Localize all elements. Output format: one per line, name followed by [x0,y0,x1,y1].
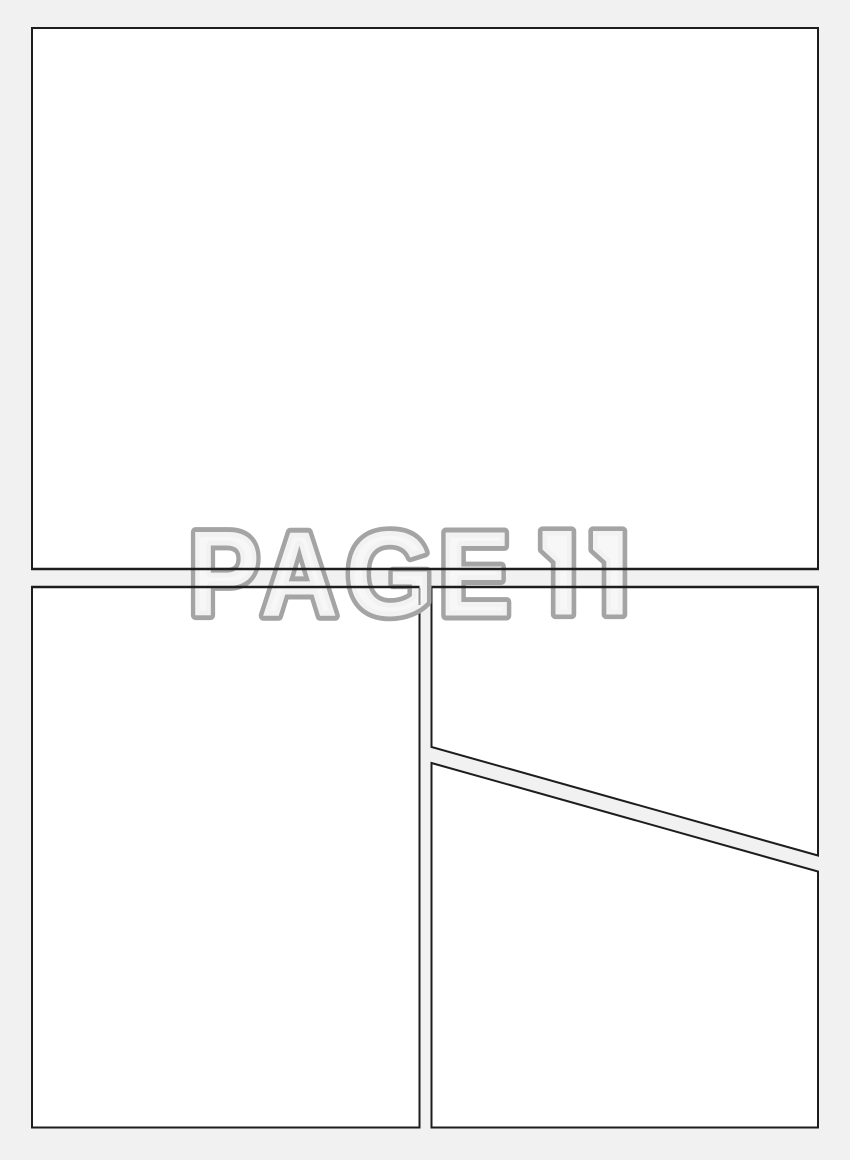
svg-text:A: A [261,507,339,642]
svg-text:E: E [438,507,511,641]
svg-text:G: G [345,506,434,641]
svg-text:P: P [188,507,260,642]
